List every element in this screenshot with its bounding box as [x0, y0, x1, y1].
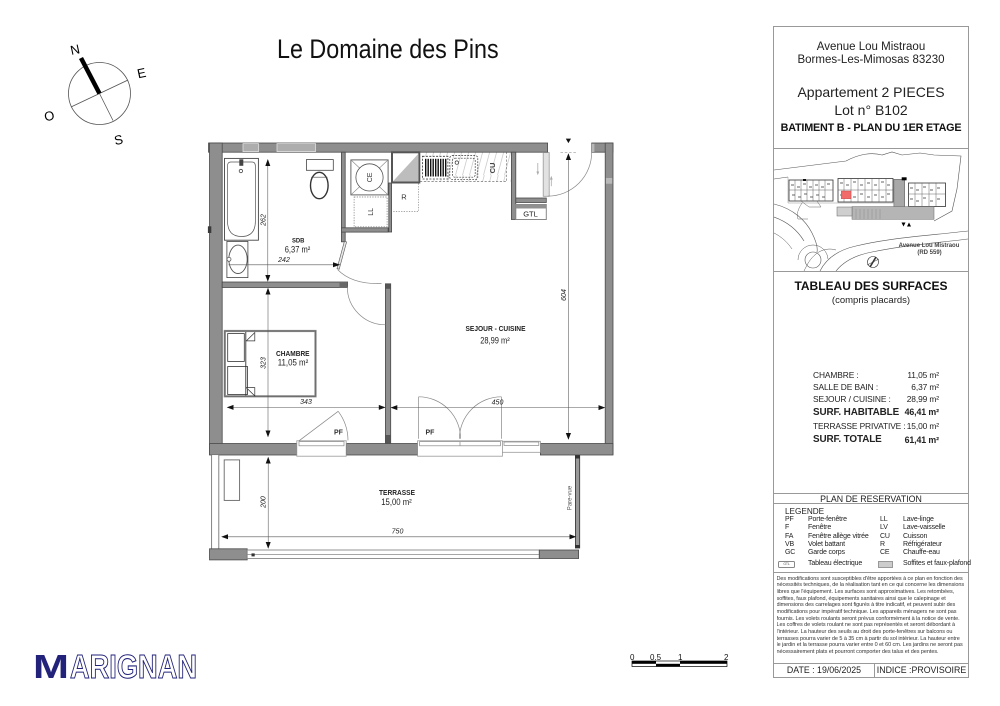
svg-text:604: 604	[561, 289, 568, 301]
svg-text:CE: CE	[367, 172, 374, 182]
svg-text:SDB: SDB	[292, 238, 305, 245]
svg-text:CU: CU	[488, 163, 497, 174]
svg-text:450: 450	[492, 400, 504, 407]
svg-text:SEJOUR - CUISINE: SEJOUR - CUISINE	[466, 326, 526, 333]
svg-text:242: 242	[277, 257, 290, 264]
svg-text:LL: LL	[368, 208, 375, 216]
svg-text:M: M	[33, 648, 69, 685]
svg-text:343: 343	[300, 399, 312, 406]
svg-text:S: S	[113, 132, 125, 149]
svg-text:(RD 559): (RD 559)	[917, 250, 941, 256]
svg-text:6,37 m²: 6,37 m²	[285, 245, 311, 255]
svg-text:262: 262	[260, 214, 267, 227]
svg-text:GTL: GTL	[523, 210, 538, 219]
svg-text:28,99 m²: 28,99 m²	[480, 336, 510, 346]
svg-text:15,00 m²: 15,00 m²	[381, 497, 412, 507]
svg-text:Pare-vue: Pare-vue	[568, 485, 574, 510]
svg-text:N: N	[69, 41, 81, 58]
svg-text:O: O	[43, 108, 56, 125]
svg-text:TERRASSE: TERRASSE	[379, 490, 415, 497]
svg-text:R: R	[401, 193, 407, 202]
svg-text:323: 323	[261, 357, 268, 369]
svg-text:PF: PF	[426, 430, 436, 437]
svg-text:200: 200	[261, 496, 268, 509]
svg-text:Avenue Lou Mistraou: Avenue Lou Mistraou	[899, 243, 960, 249]
svg-text:ARIGNAN: ARIGNAN	[70, 648, 197, 685]
svg-text:E: E	[136, 65, 148, 82]
svg-text:11,05 m²: 11,05 m²	[278, 358, 309, 368]
svg-text:750: 750	[392, 529, 404, 536]
svg-text:PF: PF	[334, 430, 344, 437]
